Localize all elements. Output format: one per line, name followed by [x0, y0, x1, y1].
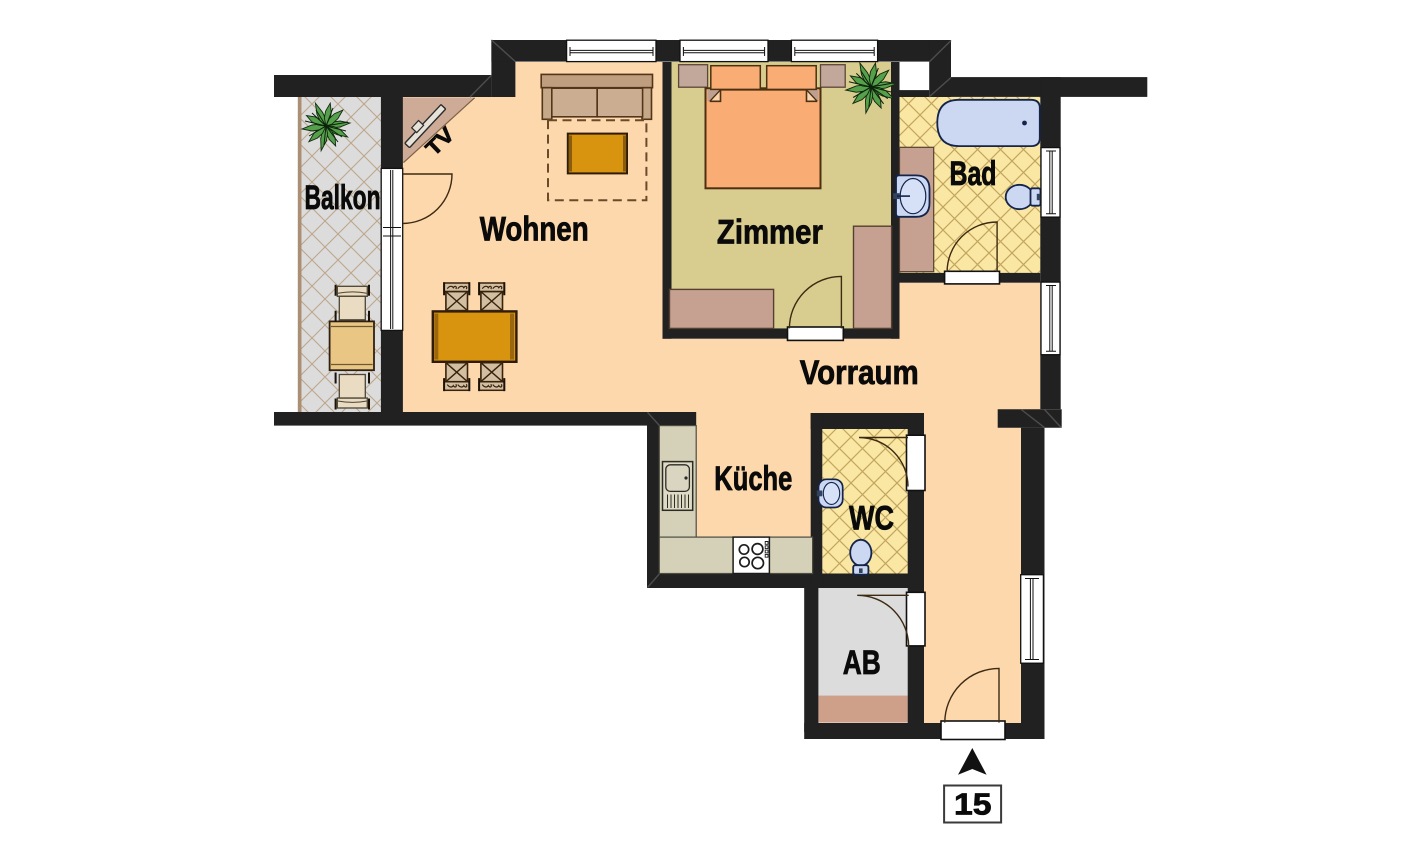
svg-text:Wohnen: Wohnen — [480, 211, 589, 249]
svg-text:AB: AB — [843, 644, 881, 682]
svg-text:15: 15 — [954, 787, 992, 822]
svg-text:Küche: Küche — [714, 460, 792, 498]
svg-text:Balkon: Balkon — [305, 179, 381, 217]
svg-text:Zimmer: Zimmer — [717, 214, 823, 252]
svg-text:WC: WC — [849, 499, 894, 537]
svg-text:Vorraum: Vorraum — [800, 354, 919, 392]
svg-text:Bad: Bad — [950, 155, 997, 193]
